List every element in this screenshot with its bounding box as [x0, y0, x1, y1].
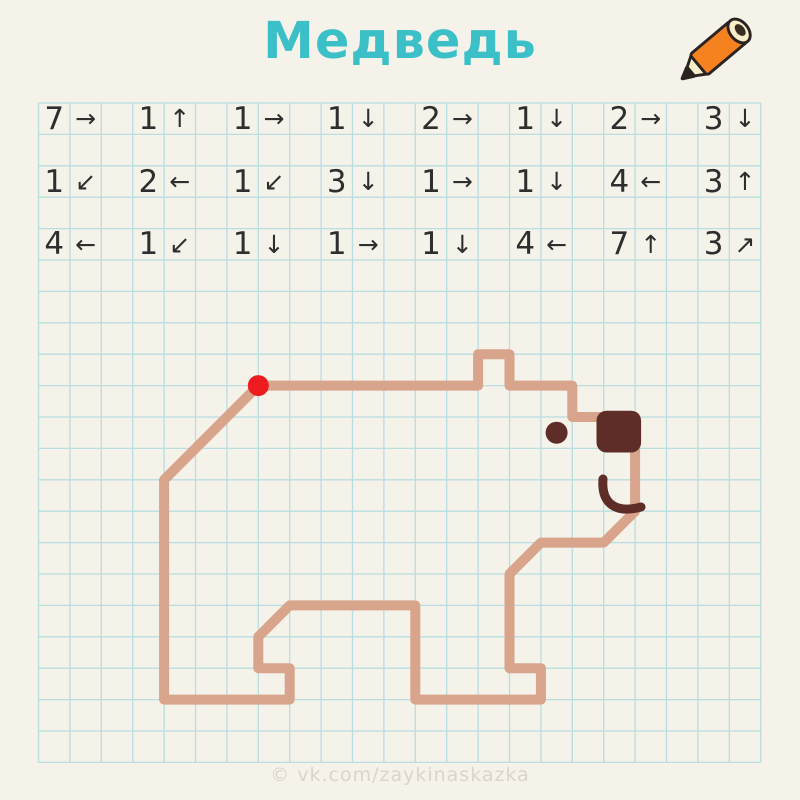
watermark: © vk.com/zaykinaskazka: [0, 764, 800, 786]
bear-eye: [546, 422, 568, 444]
drawing-board: [0, 0, 800, 800]
start-dot: [248, 375, 269, 396]
bear-nose: [597, 411, 642, 453]
grid-lines: [39, 103, 761, 762]
bear-outline: [164, 354, 635, 699]
